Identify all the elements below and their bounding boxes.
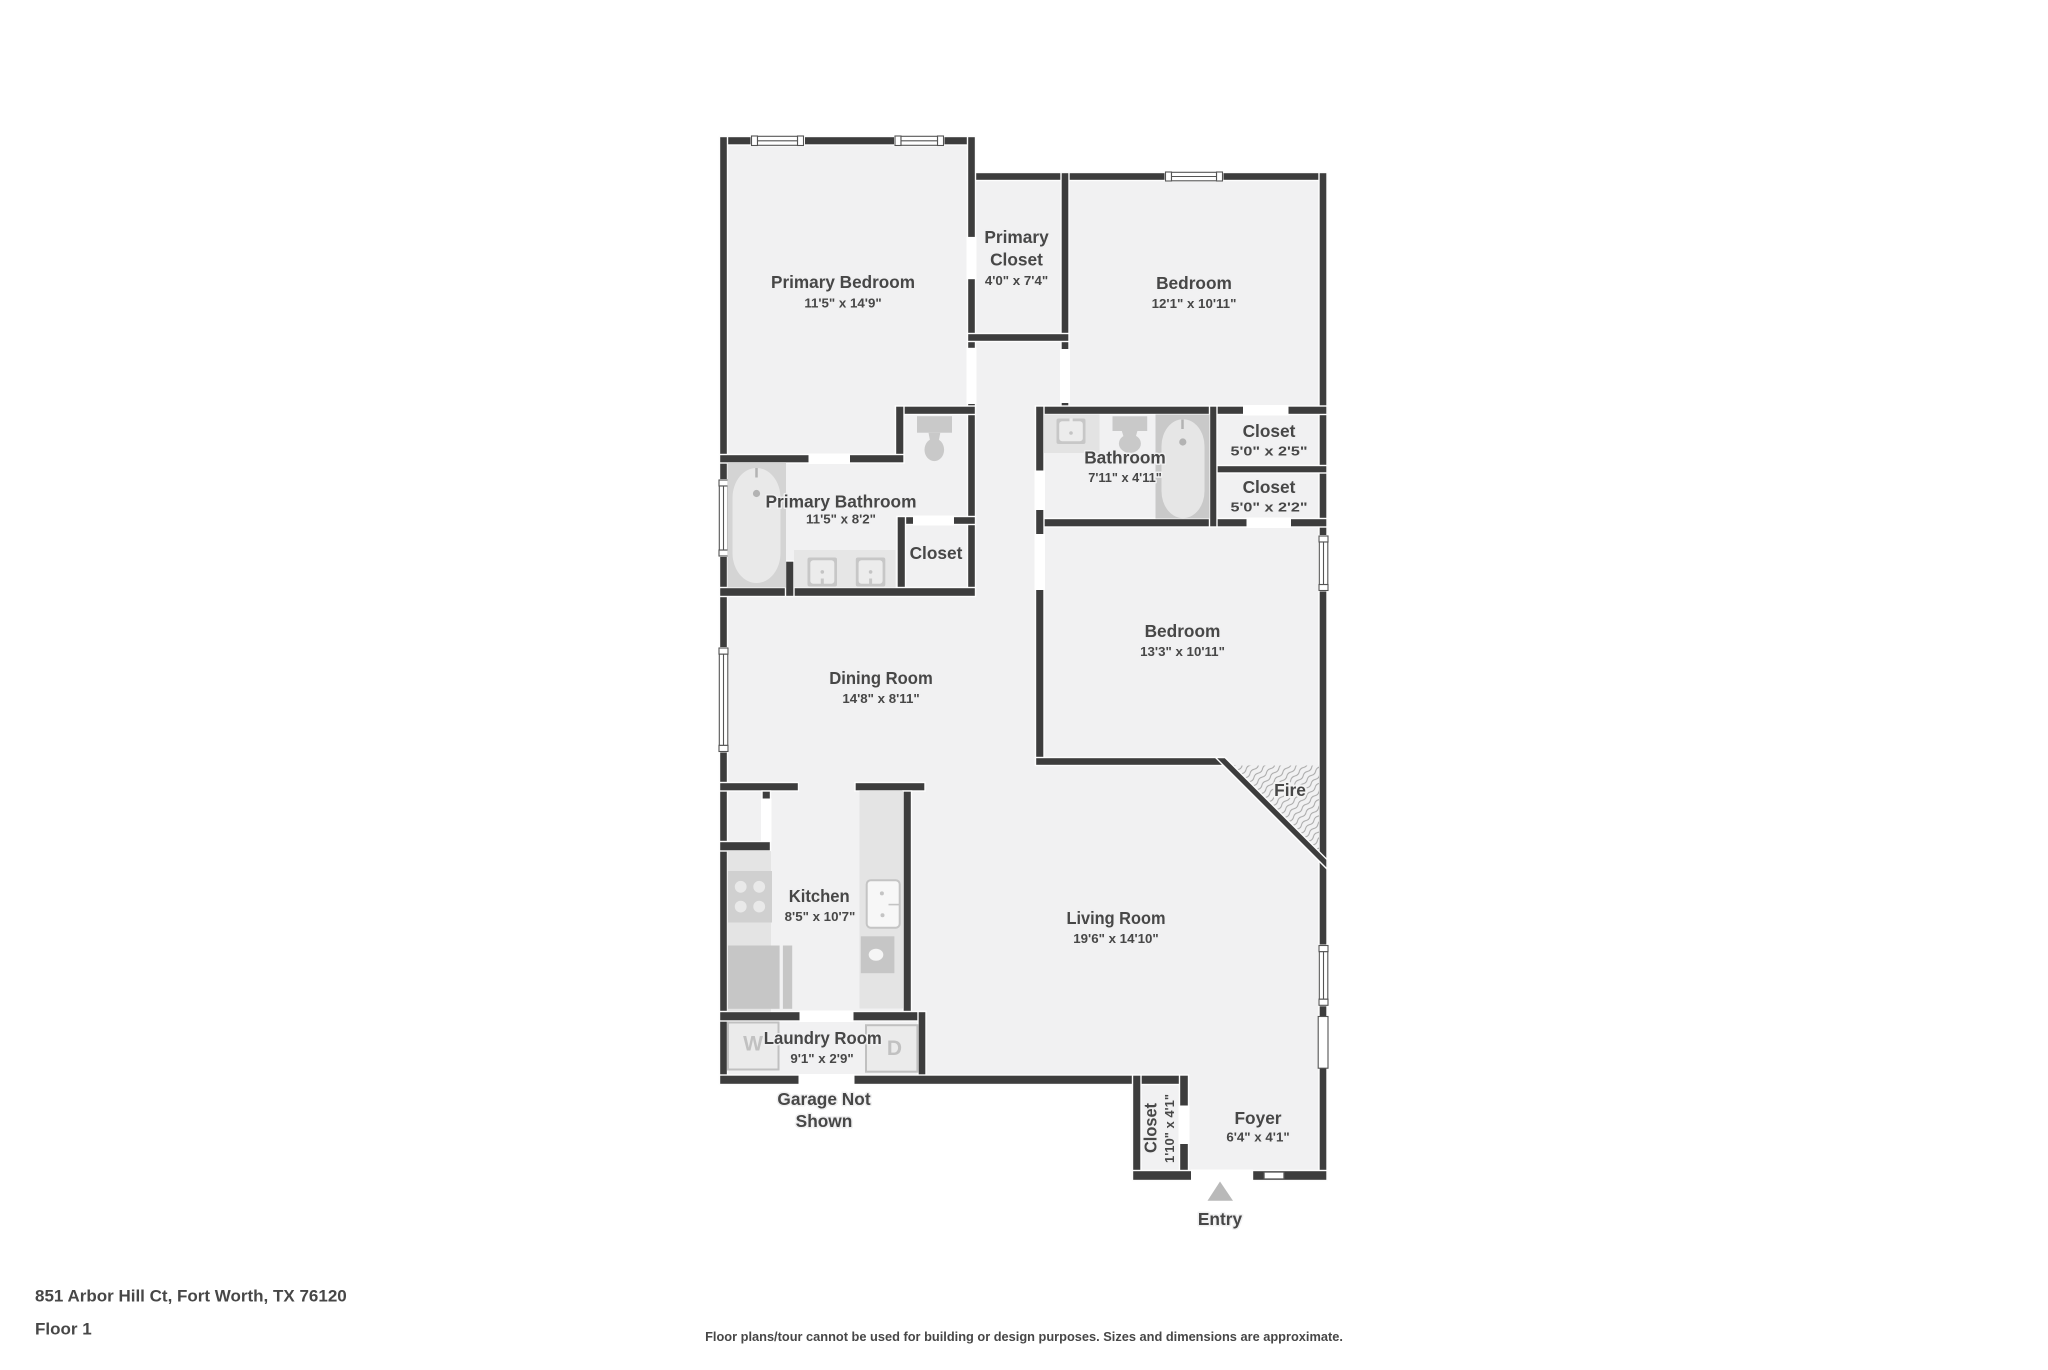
svg-text:Fire: Fire — [1274, 780, 1306, 800]
svg-text:7'11" x 4'11": 7'11" x 4'11" — [1088, 470, 1162, 485]
svg-text:851 Arbor Hill Ct, Fort Worth,: 851 Arbor Hill Ct, Fort Worth, TX 76120 — [35, 1287, 347, 1306]
svg-text:Dining Room: Dining Room — [829, 668, 933, 688]
svg-text:Primary: Primary — [984, 227, 1049, 247]
svg-text:1'10" x 4'1": 1'10" x 4'1" — [1162, 1094, 1177, 1163]
svg-text:Bedroom: Bedroom — [1145, 621, 1221, 641]
svg-text:Kitchen: Kitchen — [789, 886, 850, 906]
svg-text:W: W — [743, 1033, 763, 1056]
svg-text:Garage Not: Garage Not — [777, 1089, 870, 1109]
svg-text:5'0" x 2'5": 5'0" x 2'5" — [1231, 443, 1308, 458]
svg-text:13'3" x 10'11": 13'3" x 10'11" — [1140, 644, 1225, 659]
svg-text:4'0" x 7'4": 4'0" x 7'4" — [985, 273, 1048, 288]
svg-text:5'0" x 2'2": 5'0" x 2'2" — [1231, 499, 1308, 514]
svg-text:D: D — [887, 1037, 902, 1060]
svg-text:Floor plans/tour cannot be use: Floor plans/tour cannot be used for buil… — [705, 1329, 1343, 1344]
svg-text:Primary Bedroom: Primary Bedroom — [771, 272, 915, 292]
svg-text:Foyer: Foyer — [1234, 1108, 1281, 1128]
svg-text:11'5" x 8'2": 11'5" x 8'2" — [806, 512, 876, 527]
svg-text:14'8" x 8'11": 14'8" x 8'11" — [842, 691, 919, 706]
svg-text:6'4" x 4'1": 6'4" x 4'1" — [1226, 1130, 1289, 1145]
svg-text:Closet: Closet — [1243, 477, 1296, 497]
svg-text:Shown: Shown — [796, 1111, 853, 1131]
svg-text:12'1" x 10'11": 12'1" x 10'11" — [1152, 296, 1237, 311]
svg-text:Entry: Entry — [1198, 1209, 1243, 1229]
svg-text:Living Room: Living Room — [1067, 908, 1166, 928]
svg-text:Primary Bathroom: Primary Bathroom — [766, 492, 917, 512]
svg-text:9'1" x 2'9": 9'1" x 2'9" — [790, 1051, 853, 1066]
svg-text:Floor 1: Floor 1 — [35, 1320, 92, 1339]
svg-text:11'5" x 14'9": 11'5" x 14'9" — [804, 296, 881, 311]
svg-text:Closet: Closet — [1141, 1103, 1161, 1153]
svg-text:Bathroom: Bathroom — [1084, 447, 1166, 467]
svg-text:Closet: Closet — [1243, 421, 1296, 441]
svg-text:19'6" x 14'10": 19'6" x 14'10" — [1073, 931, 1158, 946]
svg-text:8'5" x 10'7": 8'5" x 10'7" — [785, 909, 856, 924]
svg-text:Closet: Closet — [990, 249, 1043, 269]
svg-text:Closet: Closet — [910, 543, 963, 563]
svg-text:Laundry Room: Laundry Room — [764, 1028, 882, 1048]
svg-text:Bedroom: Bedroom — [1156, 273, 1232, 293]
